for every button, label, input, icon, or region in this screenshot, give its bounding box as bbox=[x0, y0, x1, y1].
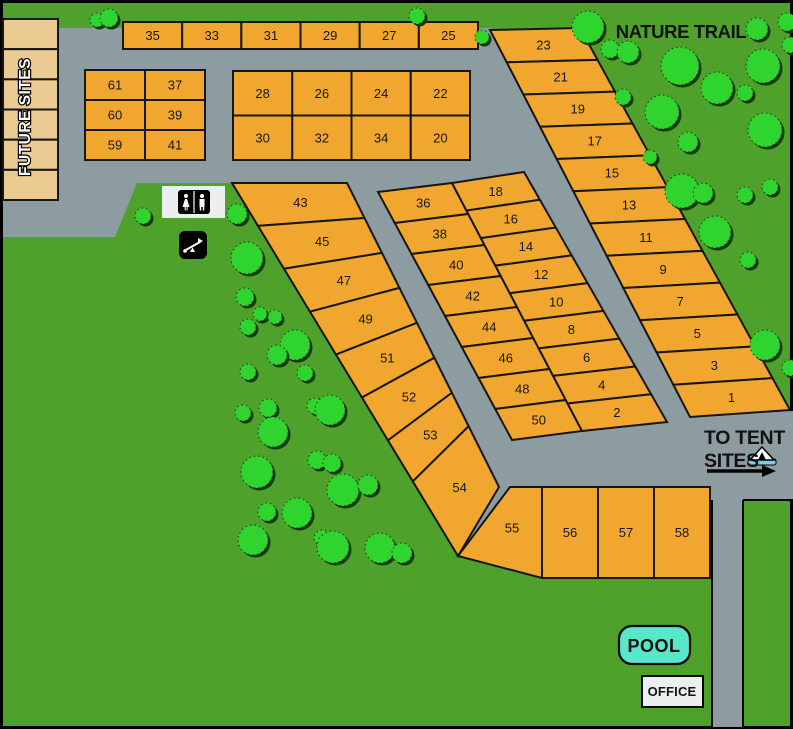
site-39-label: 39 bbox=[168, 108, 182, 123]
site-7-label: 7 bbox=[677, 294, 684, 309]
site-35-label: 35 bbox=[145, 28, 159, 43]
site-56-label: 56 bbox=[563, 525, 577, 540]
site-31-label: 31 bbox=[264, 28, 278, 43]
to-tent-line2: SITES bbox=[704, 450, 759, 472]
site-52-label: 52 bbox=[402, 390, 416, 405]
site-44-label: 44 bbox=[482, 320, 496, 335]
site-37-label: 37 bbox=[168, 78, 182, 93]
pool-label: POOL bbox=[627, 636, 680, 656]
campground-map: 3533312927256137603959412826242230323420… bbox=[0, 0, 793, 729]
nature-trail-label: NATURE TRAIL bbox=[616, 21, 747, 42]
site-19-label: 19 bbox=[570, 102, 584, 117]
site-18-label: 18 bbox=[488, 184, 502, 199]
site-58-label: 58 bbox=[675, 525, 689, 540]
site-61-label: 61 bbox=[108, 78, 122, 93]
site-5-label: 5 bbox=[694, 326, 701, 341]
site-46-label: 46 bbox=[499, 351, 513, 366]
site-49-label: 49 bbox=[358, 312, 372, 327]
site-17-label: 17 bbox=[588, 134, 602, 149]
site-9-label: 9 bbox=[660, 262, 667, 277]
site-3-label: 3 bbox=[711, 358, 718, 373]
site-28-label: 28 bbox=[255, 86, 269, 101]
site-14-label: 14 bbox=[519, 239, 533, 254]
site-25-label: 25 bbox=[441, 28, 455, 43]
site-8-label: 8 bbox=[568, 322, 575, 337]
restroom-icon bbox=[162, 186, 225, 218]
site-41-label: 41 bbox=[168, 138, 182, 153]
site-38-label: 38 bbox=[433, 227, 447, 242]
map-canvas: 3533312927256137603959412826242230323420… bbox=[0, 0, 793, 729]
site-4-label: 4 bbox=[598, 378, 605, 393]
site-47-label: 47 bbox=[337, 273, 351, 288]
site-60-label: 60 bbox=[108, 108, 122, 123]
future-sites-column-cell bbox=[3, 19, 58, 49]
site-26-label: 26 bbox=[315, 86, 329, 101]
site-48-label: 48 bbox=[515, 382, 529, 397]
future-sites-label: FUTURE SITES bbox=[17, 58, 34, 176]
site-33-label: 33 bbox=[205, 28, 219, 43]
office-label: OFFICE bbox=[648, 684, 697, 699]
site-29-label: 29 bbox=[323, 28, 337, 43]
playground-icon bbox=[179, 231, 207, 259]
site-59-label: 59 bbox=[108, 138, 122, 153]
site-55-label: 55 bbox=[505, 521, 519, 536]
site-51-label: 51 bbox=[380, 351, 394, 366]
site-53-label: 53 bbox=[423, 428, 437, 443]
site-22-label: 22 bbox=[433, 86, 447, 101]
site-10-label: 10 bbox=[549, 295, 563, 310]
site-11-label: 11 bbox=[639, 230, 653, 245]
site-42-label: 42 bbox=[466, 289, 480, 304]
site-57-label: 57 bbox=[619, 525, 633, 540]
site-34-label: 34 bbox=[374, 130, 388, 145]
site-43-label: 43 bbox=[293, 195, 307, 210]
site-23-label: 23 bbox=[536, 38, 550, 53]
site-36-label: 36 bbox=[416, 196, 430, 211]
site-40-label: 40 bbox=[449, 258, 463, 273]
site-16-label: 16 bbox=[504, 212, 518, 227]
site-45-label: 45 bbox=[315, 234, 329, 249]
site-20-label: 20 bbox=[433, 130, 447, 145]
site-27-label: 27 bbox=[382, 28, 396, 43]
to-tent-line1: TO TENT bbox=[704, 427, 785, 449]
site-12-label: 12 bbox=[534, 267, 548, 282]
site-2-label: 2 bbox=[613, 405, 620, 420]
site-32-label: 32 bbox=[315, 130, 329, 145]
site-30-label: 30 bbox=[255, 130, 269, 145]
site-21-label: 21 bbox=[553, 70, 567, 85]
site-6-label: 6 bbox=[583, 350, 590, 365]
site-15-label: 15 bbox=[605, 166, 619, 181]
site-1-label: 1 bbox=[728, 390, 735, 405]
site-50-label: 50 bbox=[532, 413, 546, 428]
site-54-label: 54 bbox=[452, 480, 466, 495]
site-24-label: 24 bbox=[374, 86, 388, 101]
site-13-label: 13 bbox=[622, 198, 636, 213]
